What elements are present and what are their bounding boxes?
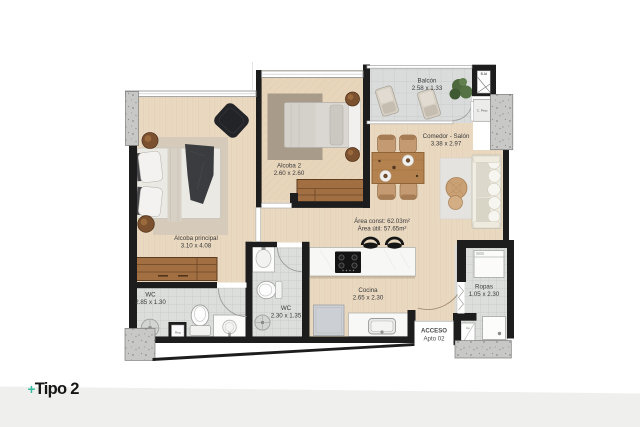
svg-text:Balcón: Balcón bbox=[418, 78, 437, 85]
svg-text:Área útil: 57.65m²: Área útil: 57.65m² bbox=[358, 226, 407, 233]
svg-text:B.At: B.At bbox=[481, 72, 487, 76]
svg-text:Alcoba 2: Alcoba 2 bbox=[277, 163, 302, 170]
svg-text:Ropas: Ropas bbox=[475, 284, 493, 291]
svg-text:Área const: 62.03m²: Área const: 62.03m² bbox=[354, 218, 410, 225]
svg-text:Comedor - Salón: Comedor - Salón bbox=[423, 133, 470, 140]
svg-text:2.65 x 2.30: 2.65 x 2.30 bbox=[353, 295, 384, 302]
svg-text:Alcoba principal: Alcoba principal bbox=[174, 235, 218, 242]
svg-text:C. Flejo: C. Flejo bbox=[477, 109, 488, 113]
svg-text:WC: WC bbox=[145, 292, 156, 299]
svg-text:2.30 x 1.35: 2.30 x 1.35 bbox=[271, 313, 302, 320]
svg-text:2.60 x 2.60: 2.60 x 2.60 bbox=[274, 170, 305, 177]
svg-text:1.05 x 2.30: 1.05 x 2.30 bbox=[469, 291, 500, 298]
svg-text:+Tipo 2: +Tipo 2 bbox=[28, 380, 80, 398]
svg-text:2.58 x 1.33: 2.58 x 1.33 bbox=[412, 85, 443, 92]
svg-text:ACCESO: ACCESO bbox=[421, 328, 447, 335]
svg-text:WC: WC bbox=[281, 305, 292, 312]
svg-text:2.85 x 1.30: 2.85 x 1.30 bbox=[135, 299, 166, 306]
svg-text:Cocina: Cocina bbox=[358, 287, 378, 294]
svg-text:Reg: Reg bbox=[175, 331, 181, 335]
svg-text:Apto 02: Apto 02 bbox=[423, 336, 445, 343]
svg-text:3.38 x 2.97: 3.38 x 2.97 bbox=[431, 141, 462, 148]
svg-text:3.10 x 4.08: 3.10 x 4.08 bbox=[181, 243, 212, 250]
svg-text:bo: bo bbox=[466, 326, 470, 330]
